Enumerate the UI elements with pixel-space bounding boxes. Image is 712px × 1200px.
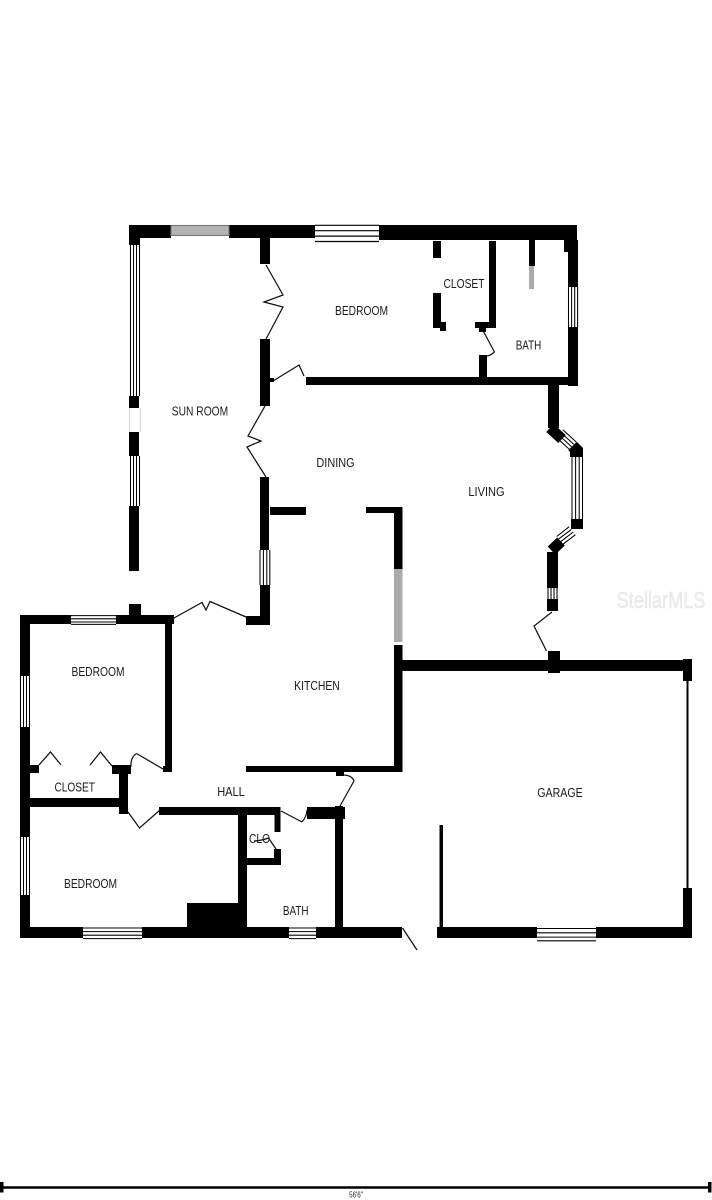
svg-text:GARAGE: GARAGE: [537, 785, 583, 800]
svg-text:HALL: HALL: [217, 784, 245, 799]
svg-text:BATH: BATH: [283, 905, 309, 919]
svg-text:BEDROOM: BEDROOM: [71, 665, 124, 679]
svg-text:KITCHEN: KITCHEN: [294, 679, 340, 693]
svg-text:56'6": 56'6": [349, 1191, 363, 1200]
svg-text:CLOSET: CLOSET: [443, 277, 484, 291]
svg-text:StellarMLS: StellarMLS: [617, 588, 706, 614]
svg-text:DINING: DINING: [316, 455, 354, 470]
svg-text:CLOSET: CLOSET: [54, 780, 95, 794]
svg-text:CLO: CLO: [249, 832, 270, 846]
svg-text:BATH: BATH: [516, 339, 542, 353]
svg-text:SUN ROOM: SUN ROOM: [172, 404, 228, 418]
svg-text:LIVING: LIVING: [468, 484, 504, 499]
svg-text:BEDROOM: BEDROOM: [64, 877, 117, 891]
svg-text:BEDROOM: BEDROOM: [335, 304, 388, 318]
